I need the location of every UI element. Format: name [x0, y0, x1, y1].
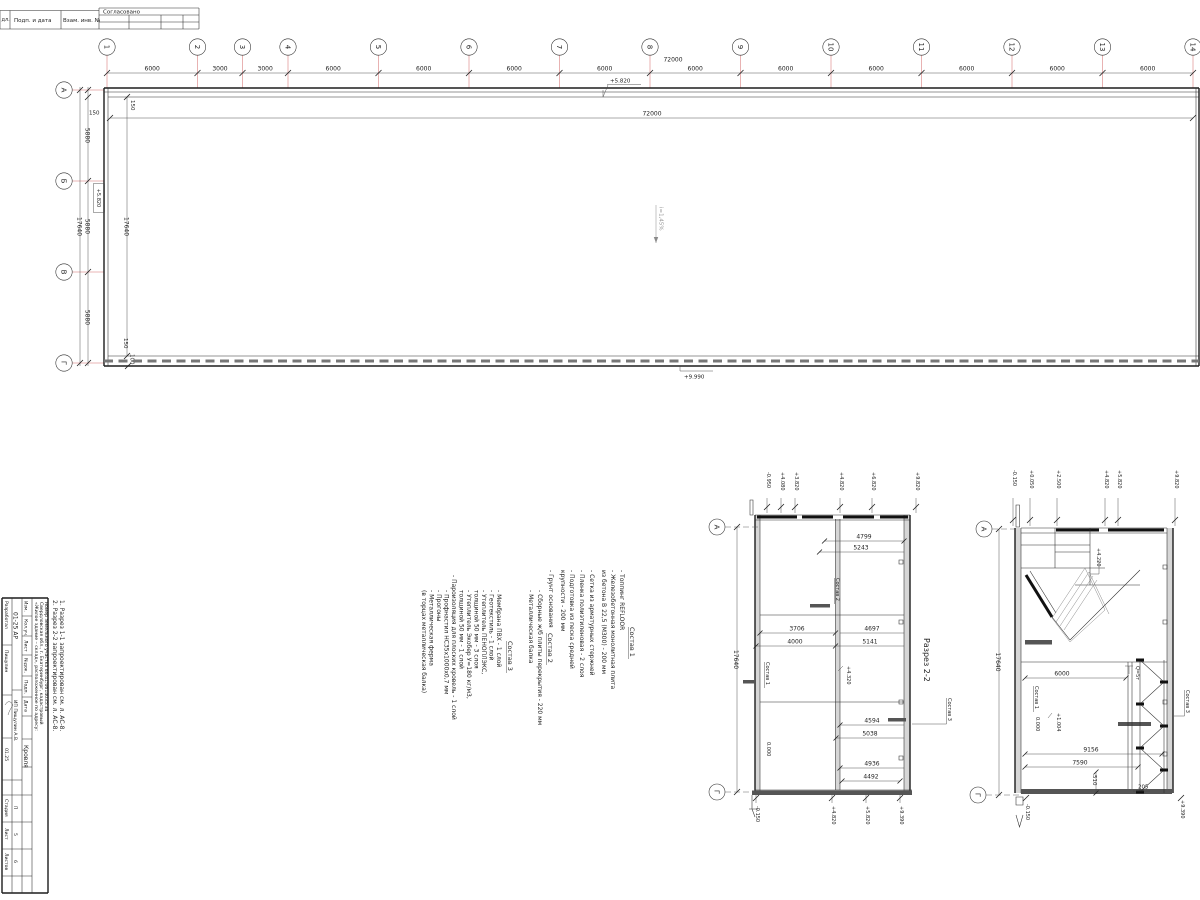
stamp-doc-number: 01-25 АР [12, 612, 19, 639]
comp1-item: - Грунт основания [547, 570, 554, 628]
dim-label: 4799 [856, 534, 871, 541]
stamp-h-izm: Изм. [23, 601, 29, 612]
axis-bubble-label: 8 [646, 45, 654, 49]
axis-bubble-label: А [980, 527, 988, 532]
plan-slope-mark: i=1,45% [654, 205, 664, 243]
stamp-role: Разработал [3, 601, 9, 629]
stamp-sheets-header: Листов [3, 853, 9, 870]
comp2-title: Состав 2 [546, 633, 554, 663]
level-label: +4.320 [845, 666, 851, 685]
stamp-company: ИП Пищулин А.В. [12, 700, 18, 741]
dim-label: 6000 [416, 66, 431, 73]
frame-col-sig: Подп. и дата [14, 18, 51, 24]
note-line: 2. Разрез 2-2 запроектирован см. л. АС-8… [51, 600, 58, 731]
comp1-item: из бетона В 22,5 (М300) - 200 мм [600, 570, 607, 674]
dim-label: 6000 [959, 66, 974, 73]
dim-label: 4936 [864, 761, 879, 768]
side-notes: 1. Разрез 1-1 запроектирован см. л. АС-8… [51, 600, 65, 731]
comp-ref-label: Состав 2 [834, 578, 840, 601]
section1-axes: А Г 17640 [970, 521, 1019, 803]
dim-label: 3706 [789, 626, 804, 633]
comp-ref-label: Состав 1 [1033, 686, 1039, 709]
comp-ref-label: Состав 1 [764, 662, 770, 685]
section2-dims: 4799 5243 3706 4000 4697 5141 4594 5038 … [754, 534, 907, 784]
axis-bubble-label: А [60, 88, 68, 93]
comp-ref-label: Состав 3 [946, 698, 952, 721]
level-label: +5.820 [610, 79, 631, 85]
level-label: +9.390 [898, 806, 904, 825]
axis-bubble-label: 13 [1098, 43, 1106, 52]
stamp-h-data: Дата [23, 700, 29, 712]
axis-bubble-label: 9 [736, 45, 744, 49]
comp3-item: - Утеплитель ПЕНОПЛЭКС, [480, 590, 487, 674]
stamp-stage-value: П [12, 806, 18, 809]
comp1-item: - Топпинг REFLOOR [618, 570, 625, 630]
dim-label: 3000 [258, 66, 273, 73]
drawing-sheet: дл. Подп. и дата Взам. инв. № Согласован… [0, 0, 1200, 900]
axis-bubble-label: 3 [238, 45, 246, 49]
note-line: 1. Разрез 1-1 запроектирован см. л. АС-8… [58, 600, 65, 731]
level-label: +4.820 [1103, 470, 1109, 489]
dim-label: 150 [122, 338, 128, 349]
axis-bubble-label: В [60, 270, 68, 275]
dim-label: 5880 [84, 219, 91, 234]
comp3-item: толщиной 50 мм - 3 слоя [473, 590, 480, 669]
dim-label: 7590 [1072, 760, 1087, 767]
frame-approved: Согласовано [103, 10, 141, 16]
comp-ref-label: Состав 3 [1184, 690, 1190, 713]
axis-bubble-label: 6 [465, 45, 473, 50]
dim-label: 6000 [1054, 671, 1069, 678]
axis-bubble-label: 11 [917, 43, 925, 52]
axis-bubble-label: 14 [1189, 43, 1197, 52]
section2-levels-bottom: -0.150 +4.820 +5.820 +9.390 [753, 795, 904, 825]
level-label: 0.000 [765, 742, 771, 756]
section1-levels-bottom: -0.150 +9.390 [1023, 795, 1185, 820]
axis-bubble-label: 1 [103, 45, 111, 49]
dim-label: 5038 [862, 731, 877, 738]
stamp-sheet-header: Лист [3, 828, 9, 840]
axis-bubble-label: А [713, 525, 721, 530]
comp3-item: - Мембрана ПВХ - 1 слой [495, 590, 502, 667]
axis-bubble-label: 10 [827, 43, 835, 52]
slope-label: i=1,45% [658, 207, 664, 231]
dim-label: 6000 [778, 66, 793, 73]
section1-levels-top: -0.150 +0.050 +2.500 +4.820 +5.820 +9.82… [1010, 470, 1179, 526]
stamp-h-podp: Подп. [23, 680, 29, 694]
roof-plan: 1 2 3 4 5 6 7 8 9 10 11 12 13 14 6000 30… [56, 39, 1200, 381]
dim-total-label: 72000 [663, 57, 682, 64]
level-label: +6.820 [870, 472, 876, 491]
dim-label: 6000 [1050, 66, 1065, 73]
level-label: -0.150 [1011, 470, 1017, 486]
crane-label: Q=5т [1134, 666, 1140, 680]
stamp-h-dok: №док. [23, 658, 29, 673]
axis-bubble-label: 5 [374, 45, 382, 49]
frame-col-inv: дл. [2, 17, 11, 23]
dim-label: 5243 [853, 545, 868, 552]
level-label: +5.820 [95, 189, 101, 208]
dim-label: 510 [1091, 775, 1097, 786]
stamp-sheets-value: 6 [12, 860, 18, 863]
dim-total-label: 17640 [994, 652, 1001, 671]
frame-col-vzam: Взам. инв. № [63, 18, 101, 24]
section2-levels-top: -0.950 +4.080 +3.820 +4.820 +6.820 +9.82… [764, 472, 920, 513]
axis-bubble-label: 7 [555, 45, 563, 49]
comp3-item: (в торцах металлическая балка) [420, 590, 427, 693]
comp3-item: - Пароизоляция для плоских кровель - 1 с… [450, 575, 457, 720]
dim-label: 5880 [84, 310, 91, 325]
dim-total-label: 17640 [76, 217, 83, 236]
dim-label: 5141 [862, 639, 877, 646]
comp3-item: - Профнастил НС35х1000х0,7 мм [443, 590, 450, 694]
plan-grid-bubbles-top: 1 2 3 4 5 6 7 8 9 10 11 12 13 14 [99, 39, 1200, 55]
stamp-h-list: Лист [23, 640, 29, 652]
comp2-item: - Металлическая балка [527, 590, 534, 664]
title-block: Разработал Пищулин 01.25 Стадия Лист Лис… [2, 598, 49, 893]
section2-title: Разрез 2-2 [922, 638, 931, 682]
dim-label: 5880 [84, 128, 91, 143]
comp3-item: - Металлическая ферма [428, 590, 435, 666]
section-1-1: +4.220 Q=5т 6000 9156 7590 510 205 [970, 470, 1190, 827]
plan-level-axis-b: +5.820 [94, 184, 105, 213]
dim-label: 150 [129, 100, 135, 111]
dim-label: 6000 [326, 66, 341, 73]
axis-bubble-label: Г [974, 793, 982, 797]
axis-bubble-label: Б [60, 179, 68, 184]
plan-outline [104, 88, 1199, 366]
level-label: 0.000 [1034, 717, 1040, 731]
section-2-2: 4799 5243 3706 4000 4697 5141 4594 5038 … [709, 472, 952, 825]
level-label: +5.820 [1116, 470, 1122, 489]
axis-bubble-label: Г [713, 790, 721, 794]
dim-label: 3000 [212, 66, 227, 73]
section2-axes: А Г 17640 [709, 519, 758, 800]
level-label: +1.004 [1055, 713, 1061, 732]
dim-label: 4697 [864, 626, 879, 633]
comp3-item: - Утеплитель Экобер У=180 кг/м3, [465, 590, 472, 699]
comp1-item: - Подготовка из песка средней [568, 570, 575, 669]
axis-bubble-label: Г [60, 361, 68, 365]
axis-bubble-label: 2 [193, 45, 201, 49]
stamp-stage-header: Стадия [3, 799, 9, 817]
level-label: +4.820 [838, 472, 844, 491]
level-label: +9.820 [1173, 470, 1179, 489]
comp1-item: - Сетка из арматурных стержней [588, 570, 595, 676]
comp1-title: Состав 1 [628, 627, 636, 657]
dim-label: 6000 [1140, 66, 1155, 73]
level-label: -0.150 [1024, 804, 1030, 820]
composition-notes: Состав 1 - Топпинг REFLOOR - Железобетон… [420, 570, 636, 725]
stamp-date: 01.25 [3, 748, 9, 761]
level-label: +4.820 [830, 806, 836, 825]
plan-left-dim-chain: 5880 5880 5880 17640 17640 150 150 150 1… [76, 87, 136, 369]
dim-label: 9156 [1083, 747, 1098, 754]
dim-label: 6000 [145, 66, 160, 73]
stamp-name: Пищулин [3, 650, 9, 672]
dim-label: 4492 [863, 774, 878, 781]
comp3-item: - Прогоны [435, 590, 442, 622]
plan-grid-bubbles-left: А Б В Г [56, 82, 72, 371]
dim-label: 6000 [507, 66, 522, 73]
level-label: +9.820 [914, 472, 920, 491]
level-label: +2.500 [1055, 470, 1061, 489]
dim-label: 4000 [787, 639, 802, 646]
dim-total-label: 72000 [642, 111, 661, 118]
comp3-title: Состав 3 [506, 641, 514, 671]
level-label: +3.820 [793, 472, 799, 491]
section1-dims: 6000 9156 7590 510 205 [1023, 671, 1165, 796]
level-label: -0.950 [765, 472, 771, 488]
axis-bubble-label: 4 [284, 45, 292, 50]
level-label: +0.050 [1028, 470, 1034, 489]
crane-mark: Q=5т [1125, 666, 1140, 680]
dim-label: 6000 [597, 66, 612, 73]
plan-inner-total-dim: 72000 [107, 111, 1196, 122]
dim-label: 6000 [869, 66, 884, 73]
stamp-h-kol: Кол.уч. [23, 619, 29, 636]
dim-label: 4594 [864, 718, 879, 725]
comp1-item: - Железобетонная монолитная плита [609, 570, 616, 690]
comp2-item: - Сборные ж/б плиты перекрытия - 220 мм [536, 590, 543, 725]
dim-label: 150 [89, 111, 100, 117]
level-label: +5.820 [864, 806, 870, 825]
level-label: +4.080 [779, 472, 785, 491]
dim-label: 6000 [688, 66, 703, 73]
level-label: +9.390 [1179, 800, 1185, 819]
comp1-item: крупности - 200 мм [559, 570, 566, 632]
dim-total-label: 17640 [123, 217, 130, 236]
stamp-project-line: номер земельного участка 66:41:0614035:3… [43, 602, 49, 711]
comp3-item: - Геотекстиль - 1 слой [488, 590, 495, 660]
dim-label: 205 [1138, 785, 1149, 791]
axis-bubble-label: 12 [1008, 43, 1016, 52]
level-label: +9.990 [684, 375, 705, 381]
comp1-item: - Пленка полиэтиленовая - 2 слоя [578, 570, 585, 678]
stamp-sheet-name: Кровля [22, 745, 29, 768]
stamp-sheet-value: 5 [12, 833, 18, 836]
level-label: -0.150 [754, 806, 760, 822]
dim-total-label: 17640 [732, 650, 739, 669]
comp3-item: толщиной 50 мм - 1 слой [458, 590, 465, 669]
dim-label: 100 [129, 354, 135, 365]
frame-tables: дл. Подп. и дата Взам. инв. № Согласован… [0, 8, 199, 29]
plan-level-bottom: +9.990 [680, 366, 713, 381]
level-label: +4.220 [1095, 548, 1101, 567]
